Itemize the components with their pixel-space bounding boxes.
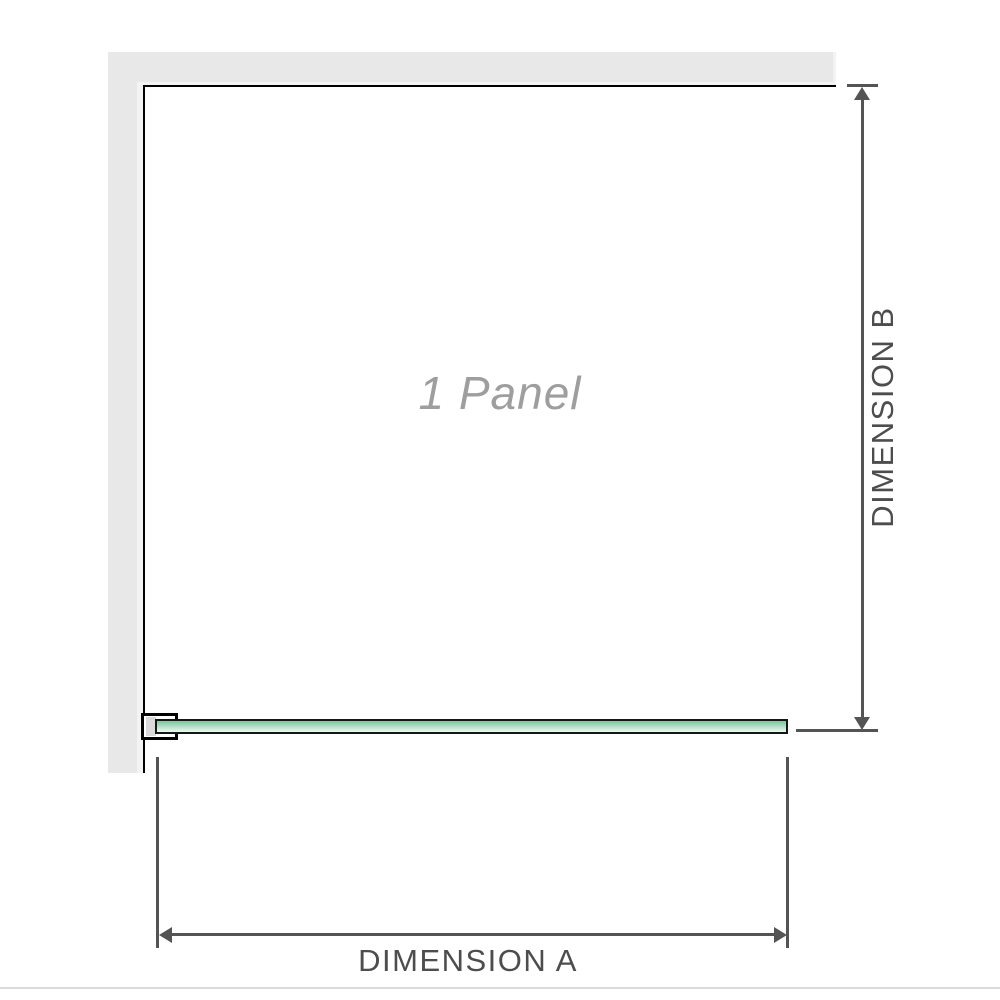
enclosure-top-border [143,85,836,87]
dimension-a-left-extension-line [156,757,159,948]
dimension-b-bottom-tick [796,729,878,732]
shower-screen-diagram: 1 Panel DIMENSION B DIMENSION A [0,0,1000,1000]
dimension-a-label: DIMENSION A [358,943,578,979]
dimension-b-line [861,99,864,718]
dimension-a-line [171,933,774,936]
arrowhead-right-icon [774,927,787,943]
panel-count-label: 1 Panel [300,366,700,420]
glass-panel [155,719,788,734]
arrowhead-left-icon [159,927,172,943]
arrowhead-up-icon [854,87,870,100]
wall-left [108,52,137,773]
enclosure-left-border [143,85,145,773]
wall-top [108,52,833,82]
dimension-b-label: DIMENSION B [865,306,901,527]
dimension-a-right-extension-line [786,757,789,948]
bottom-divider-line [0,987,1000,989]
